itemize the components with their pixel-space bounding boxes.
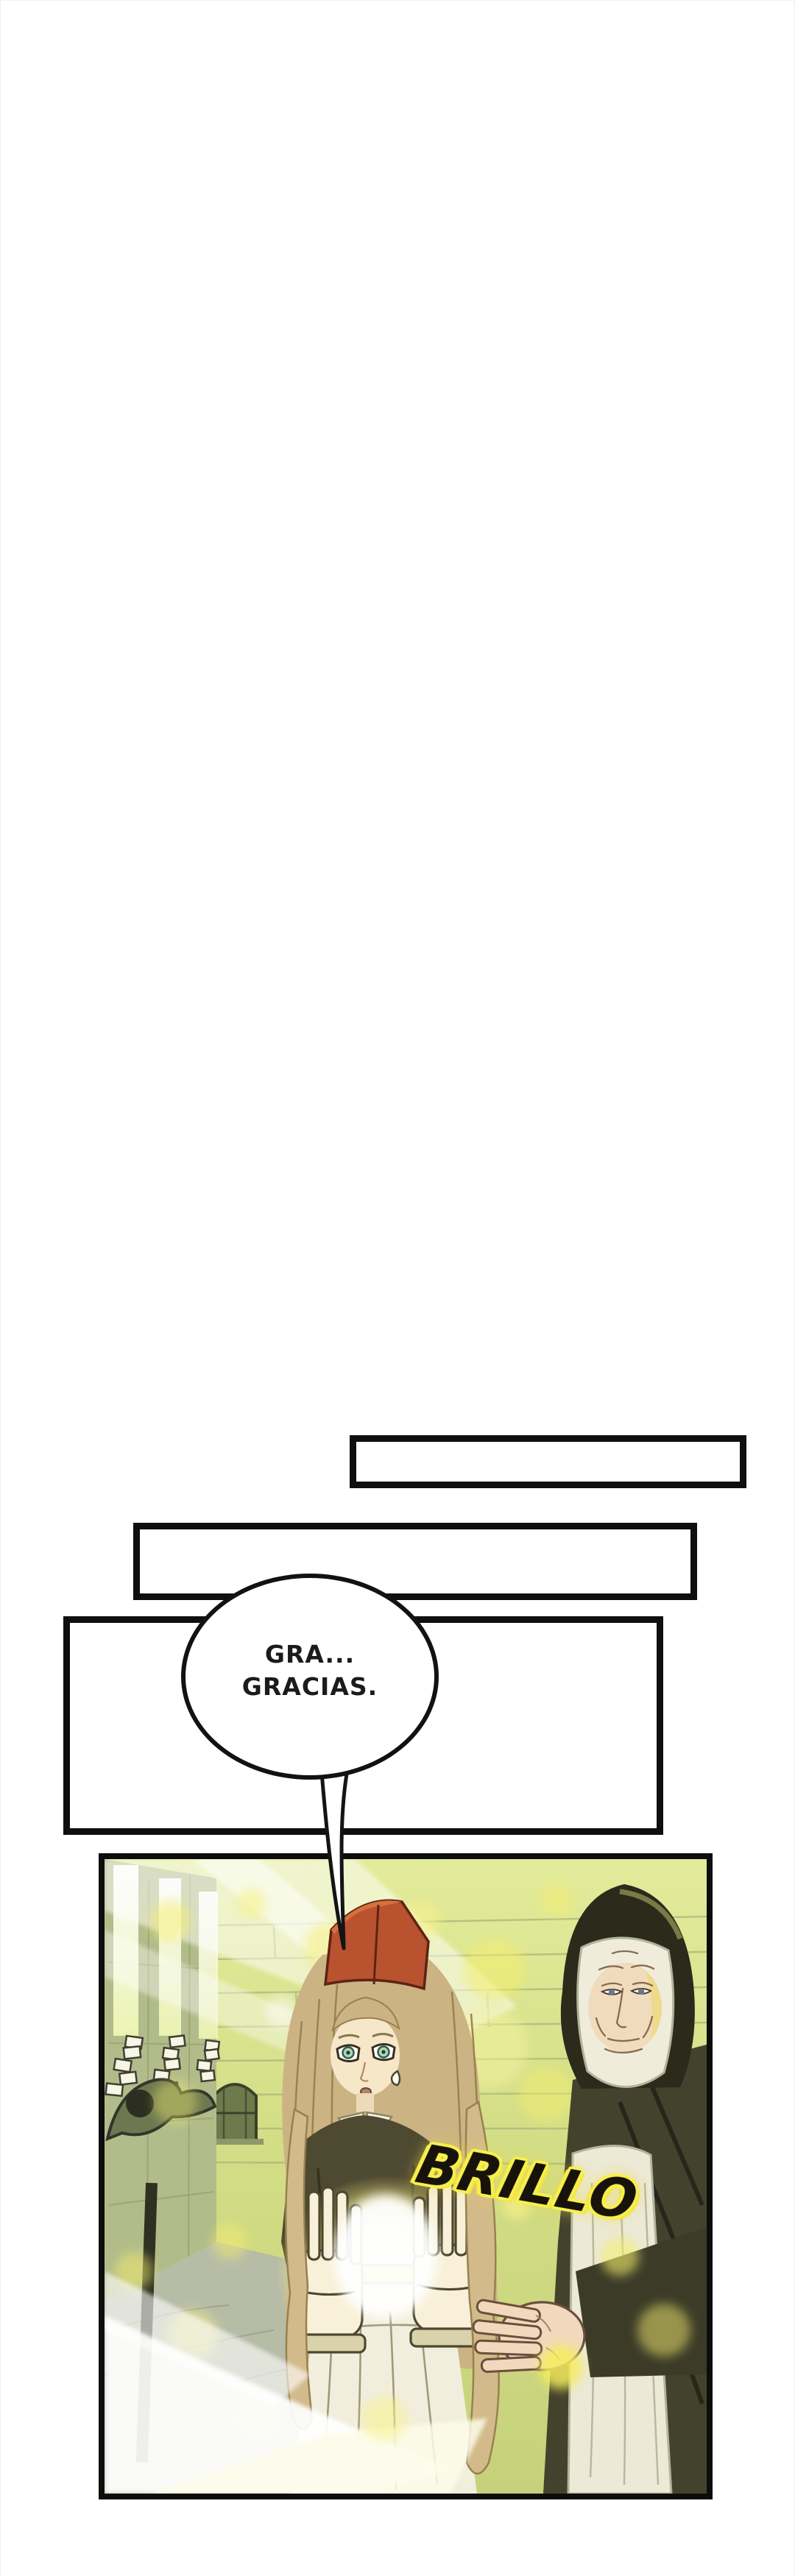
webtoon-page: GRA... GRACIAS. [0, 0, 795, 2576]
speech-bubble-text: GRA... GRACIAS. [242, 1638, 378, 1702]
narration-box-2 [133, 1523, 697, 1600]
dialogue-line-1: GRA... [242, 1638, 378, 1671]
dialogue-line-2: GRACIAS. [242, 1671, 378, 1703]
comic-panel: BRILLO [99, 1853, 713, 2499]
narration-box-1 [350, 1435, 746, 1488]
speech-bubble: GRA... GRACIAS. [181, 1574, 439, 1780]
